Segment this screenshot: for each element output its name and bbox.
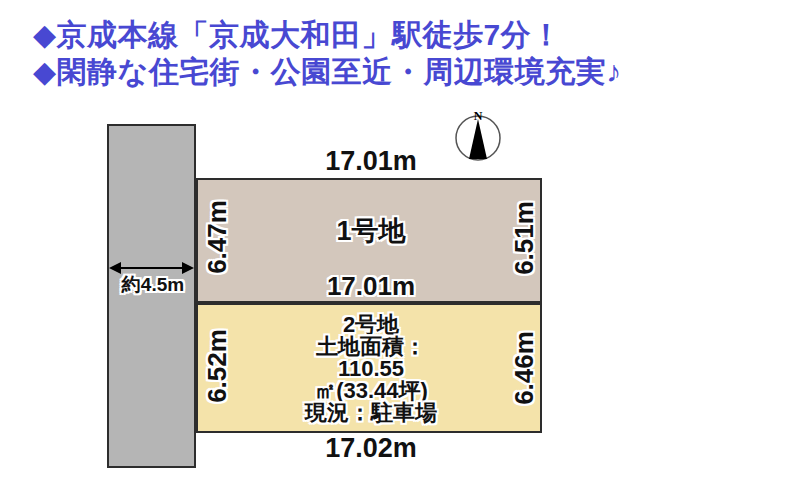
arrow-head-left	[109, 262, 121, 274]
plot1-name: 1号地	[336, 213, 405, 249]
plot1-left-dimension: 6.47m	[202, 200, 233, 274]
plot1-right-dimension: 6.51m	[509, 201, 540, 275]
compass-north-icon: N	[452, 108, 504, 164]
plot2-right-dimension: 6.46m	[509, 331, 540, 405]
property-layout-flyer: ◆京成本線「京成大和田」駅徒歩7分！ ◆閑静な住宅街・公園至近・周辺環境充実♪ …	[0, 0, 800, 491]
plot2-info-block: 2号地 土地面積： 110.55 ㎡(33.44坪) 現況：駐車場	[305, 314, 437, 424]
plot2-detail-line: ㎡(33.44坪)	[305, 380, 437, 402]
plot2-bottom-dimension: 17.02m	[325, 433, 417, 464]
compass-north-label: N	[474, 109, 483, 123]
plot2-detail-line: 土地面積：	[305, 336, 437, 358]
plot2-name: 2号地	[305, 314, 437, 336]
plot2-detail-line: 現況：駐車場	[305, 402, 437, 424]
plot2-detail-line: 110.55	[305, 358, 437, 380]
road-width-label: 約4.5m	[122, 272, 184, 298]
headline-line-1: ◆京成本線「京成大和田」駅徒歩7分！	[33, 16, 622, 53]
plot2-left-dimension: 6.52m	[202, 329, 233, 403]
headline-line-2: ◆閑静な住宅街・公園至近・周辺環境充実♪	[33, 53, 622, 90]
plot1-top-dimension: 17.01m	[325, 146, 417, 177]
plot1-bottom-dimension: 17.01m	[327, 271, 415, 302]
headline: ◆京成本線「京成大和田」駅徒歩7分！ ◆閑静な住宅街・公園至近・周辺環境充実♪	[33, 16, 622, 90]
